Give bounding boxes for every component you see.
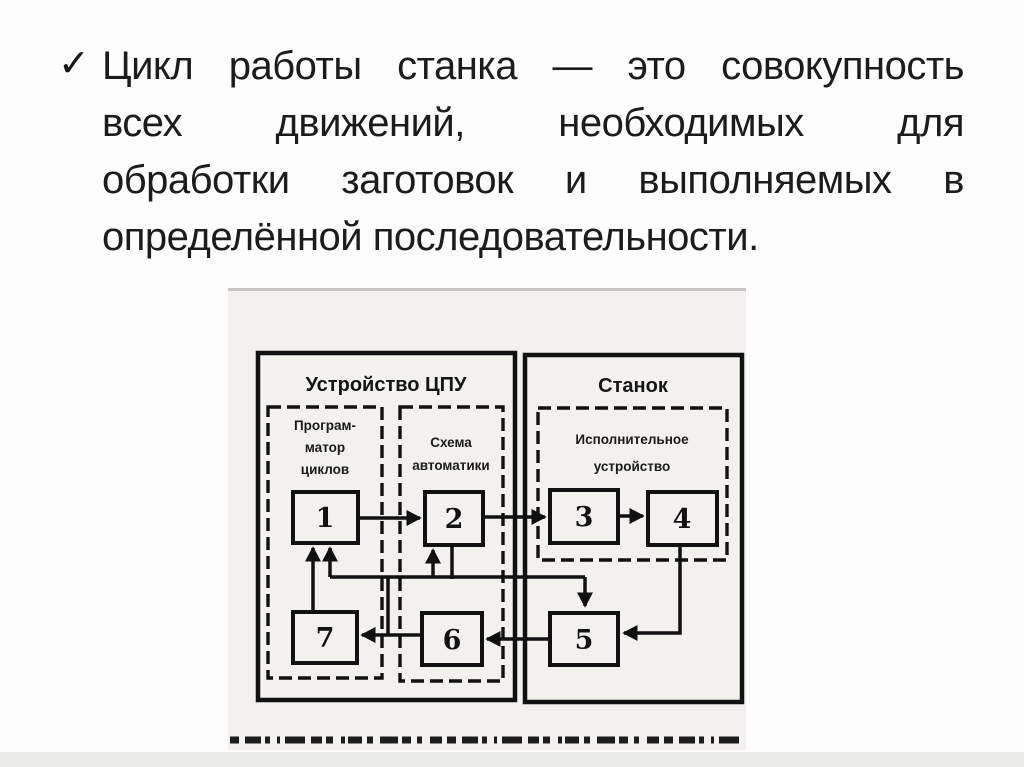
cycle-programmer-label: Програм- (294, 418, 356, 433)
block-2-number: 2 (445, 504, 464, 535)
actuator-label: Исполнительное (575, 432, 689, 447)
block-4-number: 4 (673, 504, 692, 535)
bottom-bar (0, 752, 1024, 767)
scan-top-edge (228, 288, 746, 291)
cpu-device-title: Устройство ЦПУ (306, 374, 468, 396)
scanned-diagram-image: Устройство ЦПУ Станок Програм- матор цик… (228, 288, 746, 750)
bullet-line: Цикл работы станка — это совокупность (102, 38, 964, 95)
block-5-number: 5 (575, 625, 594, 656)
actuator-label: устройство (594, 459, 671, 474)
bullet-line: обработки заготовок и выполняемых в (102, 152, 964, 209)
bullet-block: ✓ Цикл работы станка — это совокупность … (58, 38, 964, 266)
machine-title: Станок (598, 375, 669, 397)
block-6-number: 6 (443, 625, 462, 656)
arrow-4-to-5 (624, 545, 680, 633)
cycle-programmer-label: циклов (301, 462, 349, 477)
bullet-paragraph: Цикл работы станка — это совокупность вс… (102, 38, 964, 266)
block-1-number: 1 (316, 503, 335, 534)
block-diagram-svg: Устройство ЦПУ Станок Програм- матор цик… (228, 288, 746, 750)
block-7-number: 7 (316, 623, 335, 654)
automation-circuit-label: Схема (430, 435, 472, 450)
bullet-line: всех движений, необходимых для (102, 95, 964, 152)
cycle-programmer-label: матор (305, 440, 345, 455)
block-3-number: 3 (575, 502, 594, 533)
bullet-line: определённой последовательности. (102, 209, 964, 266)
automation-circuit-label: автоматики (412, 458, 489, 473)
checkmark-bullet-icon: ✓ (58, 45, 90, 83)
